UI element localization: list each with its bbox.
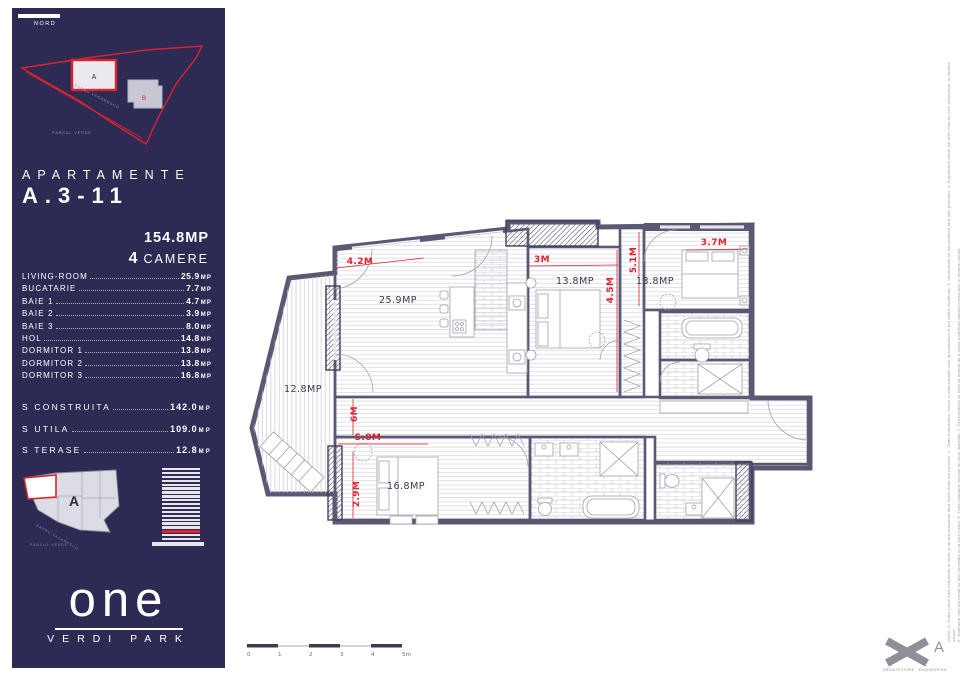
scale-tick: 2 [309, 652, 313, 658]
plan-label: 3.7M [701, 238, 728, 248]
list-item: HOL14.8MP [22, 333, 212, 345]
rooms-count-word: CAMERE [144, 252, 209, 266]
scale-bar: 012345m [243, 636, 415, 666]
page: NORD A B BARBU VACARESCU PARCUL VERDE AP… [0, 0, 960, 678]
architect-label: ARCHITECTURE · ENGINEERING [883, 668, 947, 672]
tower-floor [162, 499, 200, 501]
tower-base [152, 542, 204, 546]
toilet [539, 503, 552, 516]
apartment-title: APARTAMENTE [22, 168, 191, 182]
architect-logo-letter: A [934, 639, 944, 656]
north-indicator-bar [18, 14, 60, 18]
tower-floor [162, 538, 200, 540]
list-item: DORMITOR 213.8MP [22, 358, 212, 370]
fine-print-line-2: 5. Mobilierul este prezentat cu titlu or… [957, 57, 960, 642]
scale-tick: 1 [278, 652, 282, 658]
tower-floor [162, 522, 200, 524]
floor-plan: 25.9MP13.8MP13.8MP12.8MP16.8MP 4.2M3M3.7… [240, 212, 930, 582]
site-plan-map: A B BARBU VACARESCU PARCUL VERDE [16, 34, 218, 158]
list-item: S CONSTRUITA142.0MP [22, 402, 212, 424]
toilet [665, 475, 679, 488]
highlighted-unit [24, 475, 56, 499]
list-item: S UTILA109.0MP [22, 424, 212, 446]
rooms-count: 4CAMERE [129, 250, 209, 268]
list-item: BAIE 38.0MP [22, 321, 212, 333]
plan-label: 16.8MP [387, 481, 425, 492]
apartment-number: A.3-11 [22, 183, 129, 209]
tower-floor [162, 526, 200, 528]
plan-label: 12.8MP [284, 384, 322, 395]
tower-elevation [152, 468, 208, 546]
scale-tick: 4 [371, 652, 375, 658]
building-b-footprint [128, 80, 162, 108]
scale-tick: 0 [247, 652, 251, 658]
keyplan-building-label: A [69, 493, 79, 509]
list-item: DORMITOR 316.8MP [22, 370, 212, 382]
brand-logo-one: one [12, 574, 225, 626]
plan-label: 5.1M [629, 247, 639, 274]
tower-floor [162, 468, 200, 470]
key-plan: A BARBU VACARESCU PARCUL VERDE [18, 466, 146, 558]
rooms-count-number: 4 [129, 250, 138, 267]
tower-floor [162, 491, 200, 493]
plan-label: 25.9MP [379, 295, 417, 306]
tower-floor [162, 515, 200, 517]
tower-floor [162, 534, 200, 536]
plan-label: 5.8M [355, 433, 382, 443]
north-label: NORD [34, 21, 56, 27]
total-area: 154.8MP [144, 230, 209, 246]
plan-label: 3M [534, 255, 550, 265]
scale-tick-labels: 012345m [247, 652, 411, 658]
tower-floor [162, 484, 200, 486]
scale-tick: 5m [402, 652, 411, 658]
totals-list: S CONSTRUITA142.0MPS UTILA109.0MPS TERAS… [22, 402, 212, 467]
list-item: LIVING-ROOM25.9MP [22, 271, 212, 283]
tower-floor [162, 495, 200, 497]
scale-tick: 3 [340, 652, 344, 658]
brand-logo-rule [55, 628, 183, 630]
park-label: PARCUL VERDE [52, 131, 92, 135]
fine-print: NOTA: 1. Toate cotele sunt exprimate in … [947, 57, 960, 642]
room-list: LIVING-ROOM25.9MPBUCATARIE7.7MPBAIE 14.7… [22, 271, 212, 383]
tower-floor [162, 507, 200, 509]
sidebar: NORD A B BARBU VACARESCU PARCUL VERDE AP… [12, 8, 225, 668]
list-item: DORMITOR 113.8MP [22, 345, 212, 357]
tower-floor-highlight [162, 530, 200, 532]
tower-floor [162, 480, 200, 482]
tower-floor [162, 487, 200, 489]
brand-logo: one VERDI PARK [12, 574, 225, 645]
list-item: BAIE 14.7MP [22, 296, 212, 308]
list-item: BAIE 23.9MP [22, 308, 212, 320]
toilet [695, 348, 709, 362]
plan-label: 4.5M [606, 277, 616, 304]
tower-floor [162, 503, 200, 505]
plan-label: 6M [350, 406, 360, 422]
plan-label: 2.9M [352, 481, 362, 508]
tower-floor [162, 519, 200, 521]
tower-floor [162, 472, 200, 474]
tower-floor [162, 511, 200, 513]
list-item: S TERASE12.8MP [22, 445, 212, 467]
building-a-label: A [92, 74, 97, 81]
plan-label: 4.2M [347, 257, 374, 267]
kitchen-tile-wall [475, 250, 507, 330]
tower-floor [162, 476, 200, 478]
list-item: BUCATARIE7.7MP [22, 283, 212, 295]
brand-logo-sub: VERDI PARK [12, 633, 225, 645]
keyplan-park-label: PARCUL VERDE [30, 543, 68, 547]
building-b-label: B [142, 96, 146, 102]
architect-logo: A ARCHITECTURE · ENGINEERING [882, 636, 954, 674]
hall-cabinet [660, 401, 748, 413]
plan-label: 13.8MP [636, 276, 674, 287]
plan-label: 13.8MP [556, 276, 594, 287]
